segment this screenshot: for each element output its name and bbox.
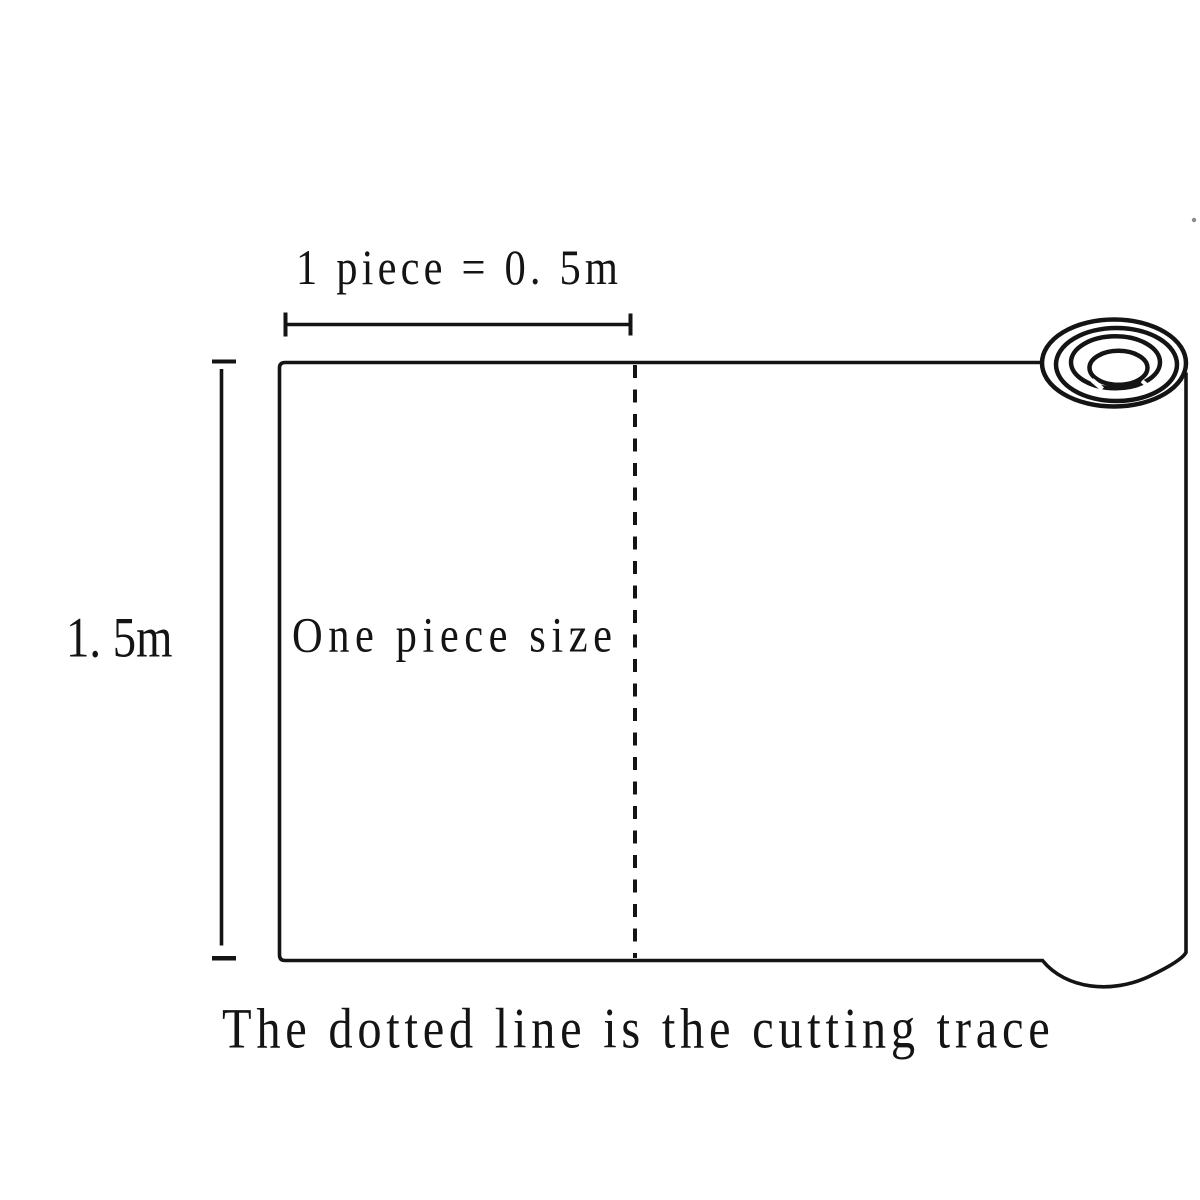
svg-text:The dotted line is the cutting: The dotted line is the cutting trace	[222, 998, 1050, 1060]
svg-text:1 piece = 0. 5m: 1 piece = 0. 5m	[296, 241, 618, 296]
svg-text:1. 5m: 1. 5m	[66, 607, 173, 669]
svg-text:One piece size: One piece size	[292, 608, 612, 663]
